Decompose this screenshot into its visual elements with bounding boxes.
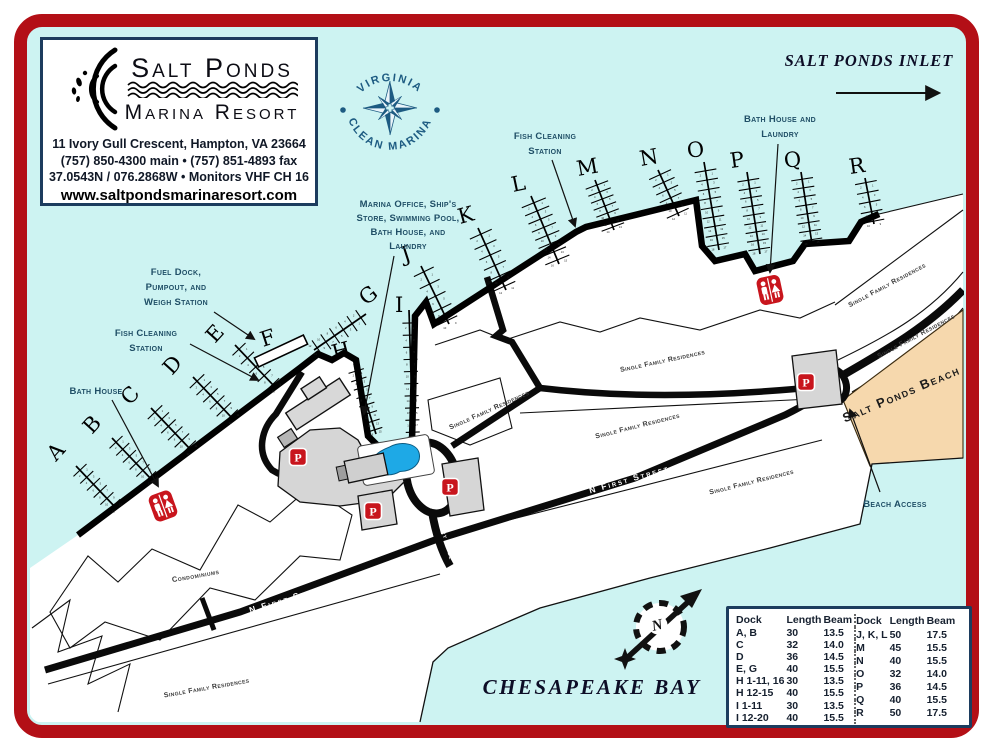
svg-text:14: 14: [708, 229, 711, 233]
svg-text:2: 2: [405, 326, 407, 330]
svg-text:3: 3: [713, 181, 715, 185]
svg-text:7: 7: [612, 204, 614, 208]
svg-text:12: 12: [406, 387, 409, 391]
table-cell: 45: [890, 641, 927, 654]
svg-text:6: 6: [662, 194, 664, 198]
fuel-dock-label: Fuel Dock,: [151, 267, 202, 278]
svg-text:12: 12: [228, 421, 231, 425]
svg-text:2: 2: [421, 278, 423, 282]
svg-text:4: 4: [160, 424, 162, 428]
svg-text:12: 12: [604, 223, 607, 227]
clean-marina-logo: VIRGINIA CLEAN MARINA: [340, 72, 440, 153]
table-row: C3214.0: [736, 639, 855, 651]
table-row: A, B3013.5: [736, 627, 855, 639]
svg-text:1: 1: [162, 409, 164, 413]
dock-letter-B: B: [78, 411, 106, 439]
svg-text:10: 10: [317, 338, 320, 342]
svg-text:10: 10: [747, 217, 750, 221]
svg-text:18: 18: [752, 251, 755, 255]
svg-text:3: 3: [874, 193, 876, 197]
svg-text:11: 11: [511, 286, 514, 290]
svg-text:11: 11: [374, 413, 377, 417]
svg-text:16: 16: [370, 432, 373, 436]
svg-text:4: 4: [744, 191, 746, 195]
svg-text:Bath House, and: Bath House, and: [370, 227, 445, 238]
svg-text:8: 8: [99, 495, 101, 499]
svg-text:12: 12: [186, 452, 189, 456]
svg-text:3: 3: [437, 284, 439, 288]
column-header: Dock: [856, 614, 890, 628]
table-row: O3214.0: [856, 667, 957, 680]
dock-letter-I: I: [395, 293, 403, 317]
svg-text:3: 3: [493, 244, 495, 248]
svg-text:13: 13: [561, 250, 564, 254]
svg-text:3: 3: [129, 446, 131, 450]
svg-text:17: 17: [764, 249, 767, 253]
svg-text:Laundry: Laundry: [389, 241, 427, 252]
svg-text:3: 3: [168, 416, 170, 420]
parking-icon: P: [446, 480, 453, 494]
table-cell: 32: [890, 667, 927, 680]
dock-letter-Q: Q: [782, 147, 802, 173]
restroom-icon: [754, 273, 786, 308]
table-cell: 14.0: [823, 639, 855, 651]
svg-text:11: 11: [616, 218, 619, 222]
table-cell: 30: [786, 627, 823, 639]
svg-text:7: 7: [758, 206, 760, 210]
svg-text:4: 4: [247, 363, 249, 367]
svg-text:6: 6: [486, 260, 488, 264]
svg-text:14: 14: [406, 399, 409, 403]
bath-house-label: Bath House: [69, 386, 122, 397]
fish-cleaning-left-label: Fish Cleaning: [115, 328, 178, 339]
parking-icon: P: [369, 504, 376, 518]
svg-text:3: 3: [210, 385, 212, 389]
svg-text:6: 6: [167, 431, 169, 435]
table-cell: P: [856, 681, 890, 694]
svg-text:9: 9: [760, 215, 762, 219]
table-cell: I 12-20: [736, 712, 786, 724]
svg-text:6: 6: [703, 192, 705, 196]
table-row: D3614.5: [736, 651, 855, 663]
svg-text:4: 4: [481, 250, 483, 254]
svg-text:9: 9: [718, 208, 720, 212]
table-row: H 12-154015.5: [736, 687, 855, 699]
table-cell: 30: [786, 700, 823, 712]
svg-text:5: 5: [136, 453, 138, 457]
table-cell: R: [856, 707, 890, 720]
svg-text:8: 8: [599, 209, 601, 213]
svg-text:10: 10: [867, 224, 870, 228]
svg-text:Station: Station: [129, 343, 162, 354]
slip-table-right: DockLengthBeamJ, K, L5017.5M4515.5N4015.…: [856, 614, 957, 720]
marina-website: www.saltpondsmarinaresort.com: [43, 187, 315, 204]
marina-logo-box: Salt Ponds Marina Resort 11 Ivory Gull C…: [40, 37, 318, 206]
svg-text:6: 6: [432, 302, 434, 306]
table-cell: 14.0: [927, 667, 958, 680]
table-cell: 14.5: [927, 681, 958, 694]
svg-text:6: 6: [799, 199, 801, 203]
svg-text:9: 9: [614, 211, 616, 215]
svg-text:14: 14: [548, 256, 551, 260]
svg-text:10: 10: [668, 209, 671, 213]
table-cell: 13.5: [823, 700, 855, 712]
marina-coordinates: 37.0543N / 076.2868W • Monitors VHF CH 1…: [43, 169, 315, 186]
svg-text:13: 13: [619, 225, 622, 229]
svg-text:16: 16: [805, 242, 808, 246]
svg-text:8: 8: [216, 407, 218, 411]
svg-text:6: 6: [597, 202, 599, 206]
svg-text:5: 5: [876, 203, 878, 207]
svg-text:6: 6: [92, 488, 94, 492]
svg-text:1: 1: [86, 467, 88, 471]
svg-text:12: 12: [365, 416, 368, 420]
svg-text:13: 13: [815, 231, 818, 235]
table-cell: O: [856, 667, 890, 680]
dock-letter-N: N: [638, 144, 660, 171]
svg-text:10: 10: [601, 216, 604, 220]
svg-text:5: 5: [175, 423, 177, 427]
svg-text:16: 16: [551, 264, 554, 268]
svg-text:4: 4: [202, 393, 204, 397]
svg-text:5: 5: [609, 197, 611, 201]
table-cell: 36: [786, 651, 823, 663]
svg-text:10: 10: [801, 216, 804, 220]
fish-cleaning-top-label: Fish Cleaning: [514, 131, 577, 142]
svg-text:9: 9: [230, 406, 232, 410]
svg-text:1: 1: [204, 378, 206, 382]
svg-text:2: 2: [115, 446, 117, 450]
table-cell: 14.5: [823, 651, 855, 663]
svg-text:3: 3: [545, 209, 547, 213]
svg-text:2: 2: [860, 186, 862, 190]
table-cell: I 1-11: [736, 700, 786, 712]
svg-text:7: 7: [812, 206, 814, 210]
bay-label: CHESAPEAKE BAY: [483, 675, 702, 699]
svg-text:13: 13: [720, 227, 723, 231]
table-row: M4515.5: [856, 641, 957, 654]
svg-text:4: 4: [86, 481, 88, 485]
svg-text:14: 14: [803, 233, 806, 237]
dock-letter-E: E: [201, 320, 229, 347]
svg-text:4: 4: [531, 215, 533, 219]
table-row: J, K, L5017.5: [856, 628, 957, 641]
table-row: E, G4015.5: [736, 663, 855, 675]
parking-icon: P: [802, 375, 809, 389]
dock-letter-A: A: [41, 437, 70, 466]
svg-text:9: 9: [113, 496, 115, 500]
svg-text:16: 16: [710, 238, 713, 242]
svg-text:11: 11: [155, 475, 158, 479]
svg-text:2: 2: [239, 354, 241, 358]
svg-text:3: 3: [671, 180, 673, 184]
table-cell: 40: [786, 663, 823, 675]
svg-text:4: 4: [426, 290, 428, 294]
column-header: Beam: [927, 614, 958, 628]
svg-text:1: 1: [488, 234, 490, 238]
svg-text:4: 4: [659, 186, 661, 190]
slip-dimensions-table: DockLengthBeamA, B3013.5C3214.0D3614.5E,…: [726, 606, 972, 728]
table-cell: H 1-11, 16: [736, 675, 786, 687]
beach-access-label: Beach Access: [863, 499, 927, 510]
svg-text:10: 10: [494, 281, 497, 285]
table-cell: 36: [890, 681, 927, 694]
table-row: N4015.5: [856, 654, 957, 667]
svg-text:2: 2: [700, 173, 702, 177]
svg-text:4: 4: [594, 195, 596, 199]
svg-text:6: 6: [256, 372, 258, 376]
table-cell: J, K, L: [856, 628, 890, 641]
table-cell: C: [736, 639, 786, 651]
dock-letter-R: R: [847, 153, 867, 179]
slip-table-left: DockLengthBeamA, B3013.5C3214.0D3614.5E,…: [736, 614, 856, 724]
svg-text:15: 15: [763, 241, 766, 245]
column-header: Length: [786, 614, 823, 627]
svg-text:1: 1: [808, 180, 810, 184]
dock-letter-O: O: [685, 137, 705, 163]
svg-text:16: 16: [751, 243, 754, 247]
svg-text:10: 10: [443, 326, 446, 330]
svg-text:Store, Swimming Pool,: Store, Swimming Pool,: [356, 213, 459, 224]
svg-text:18: 18: [711, 247, 714, 251]
svg-text:1: 1: [667, 173, 669, 177]
table-row: R5017.5: [856, 707, 957, 720]
table-cell: D: [736, 651, 786, 663]
svg-text:2: 2: [655, 178, 657, 182]
table-cell: 15.5: [927, 654, 958, 667]
dock-letter-F: F: [257, 324, 278, 351]
svg-text:15: 15: [564, 258, 567, 262]
table-cell: 40: [890, 654, 927, 667]
svg-text:3: 3: [93, 474, 95, 478]
marina-map-page: 123456789101112A123456789101112B12345678…: [0, 0, 993, 752]
table-cell: 40: [786, 712, 823, 724]
dock-A: 123456789101112A: [41, 437, 122, 513]
svg-text:7: 7: [716, 199, 718, 203]
svg-text:4: 4: [405, 338, 407, 342]
svg-text:10: 10: [105, 502, 108, 506]
svg-text:12: 12: [672, 217, 675, 221]
svg-text:1: 1: [754, 181, 756, 185]
svg-text:13: 13: [414, 399, 417, 403]
svg-text:12: 12: [544, 247, 547, 251]
svg-text:9: 9: [372, 404, 374, 408]
table-cell: 15.5: [823, 663, 855, 675]
svg-text:2: 2: [353, 314, 355, 318]
svg-text:5: 5: [715, 190, 717, 194]
svg-text:4: 4: [122, 453, 124, 457]
svg-text:17: 17: [723, 245, 726, 249]
svg-text:16: 16: [407, 411, 410, 415]
svg-text:11: 11: [119, 503, 122, 507]
compass-star-icon: [363, 81, 417, 135]
table-row: I 1-113013.5: [736, 700, 855, 712]
dock-Q: 12345678910111213141516Q: [782, 147, 822, 246]
svg-text:15: 15: [722, 236, 725, 240]
svg-text:8: 8: [406, 363, 408, 367]
column-header: Length: [890, 614, 927, 628]
marina-address: 11 Ivory Gull Crescent, Hampton, VA 2366…: [43, 136, 315, 153]
table-row: I 12-204015.5: [736, 712, 855, 724]
table-header-row: DockLengthBeam: [736, 614, 855, 627]
bath-laundry-label: Bath House and: [744, 114, 816, 125]
svg-text:10: 10: [272, 389, 275, 393]
svg-text:14: 14: [368, 424, 371, 428]
svg-text:2: 2: [591, 188, 593, 192]
table-cell: 17.5: [927, 707, 958, 720]
svg-text:1: 1: [122, 439, 124, 443]
svg-text:11: 11: [684, 211, 687, 215]
table-row: P3614.5: [856, 681, 957, 694]
svg-text:8: 8: [264, 380, 266, 384]
table-cell: 50: [890, 628, 927, 641]
svg-text:1: 1: [712, 171, 714, 175]
svg-text:5: 5: [443, 297, 445, 301]
svg-text:3: 3: [606, 190, 608, 194]
svg-text:14: 14: [607, 230, 610, 234]
svg-text:6: 6: [128, 460, 130, 464]
dock-letter-P: P: [728, 147, 745, 173]
svg-text:Pumpout, and: Pumpout, and: [146, 282, 207, 293]
svg-text:1: 1: [361, 371, 363, 375]
svg-text:12: 12: [499, 291, 502, 295]
svg-text:6: 6: [335, 326, 337, 330]
svg-text:5: 5: [757, 198, 759, 202]
svg-text:11: 11: [760, 224, 763, 228]
dock-letter-G: G: [354, 281, 382, 310]
svg-text:6: 6: [745, 200, 747, 204]
svg-text:1: 1: [431, 272, 433, 276]
svg-text:11: 11: [557, 242, 560, 246]
table-cell: 30: [786, 675, 823, 687]
inlet-label: SALT PONDS INLET: [785, 51, 954, 70]
svg-text:2: 2: [476, 239, 478, 243]
svg-text:12: 12: [308, 344, 311, 348]
svg-text:2: 2: [796, 181, 798, 185]
svg-text:7: 7: [551, 226, 553, 230]
marina-office-label: Marina Office, Ship's: [360, 199, 457, 210]
svg-text:18: 18: [407, 423, 410, 427]
svg-text:7: 7: [503, 265, 505, 269]
table-cell: 15.5: [823, 687, 855, 699]
svg-text:10: 10: [705, 210, 708, 214]
table-cell: 13.5: [823, 627, 855, 639]
table-cell: 15.5: [927, 694, 958, 707]
svg-text:2: 2: [742, 182, 744, 186]
svg-text:5: 5: [498, 255, 500, 259]
column-header: Dock: [736, 614, 786, 627]
table-cell: 15.5: [823, 712, 855, 724]
svg-text:8: 8: [174, 438, 176, 442]
table-cell: Q: [856, 694, 890, 707]
table-cell: A, B: [736, 627, 786, 639]
table-row: H 1-11, 163013.5: [736, 675, 855, 687]
dock-letter-M: M: [575, 154, 600, 181]
svg-text:4: 4: [701, 183, 703, 187]
svg-text:3: 3: [809, 188, 811, 192]
svg-text:7: 7: [369, 396, 371, 400]
svg-text:8: 8: [135, 467, 137, 471]
svg-text:6: 6: [864, 205, 866, 209]
dock-D: 123456789101112D: [158, 351, 240, 425]
table-cell: E, G: [736, 663, 786, 675]
svg-text:8: 8: [490, 270, 492, 274]
svg-text:2: 2: [79, 474, 81, 478]
svg-text:15: 15: [379, 430, 382, 434]
table-cell: 50: [890, 707, 927, 720]
svg-text:10: 10: [222, 414, 225, 418]
svg-text:7: 7: [106, 488, 108, 492]
svg-text:5: 5: [217, 392, 219, 396]
svg-text:Weigh Station: Weigh Station: [144, 297, 208, 308]
svg-text:2: 2: [154, 417, 156, 421]
table-cell: H 12-15: [736, 687, 786, 699]
marina-phone: (757) 850-4300 main • (757) 851-4893 fax: [43, 153, 315, 170]
svg-text:6: 6: [209, 400, 211, 404]
svg-text:7: 7: [224, 399, 226, 403]
svg-text:8: 8: [704, 201, 706, 205]
svg-text:1: 1: [246, 347, 248, 351]
svg-text:9: 9: [555, 234, 557, 238]
svg-text:11: 11: [814, 223, 817, 227]
table-cell: 13.5: [823, 675, 855, 687]
svg-text:5: 5: [548, 217, 550, 221]
table-header-row: DockLengthBeam: [856, 614, 957, 628]
svg-text:11: 11: [719, 218, 722, 222]
svg-text:Laundry: Laundry: [761, 129, 799, 140]
svg-text:12: 12: [148, 481, 151, 485]
svg-text:1: 1: [358, 322, 360, 326]
svg-text:5: 5: [811, 197, 813, 201]
dock-P: 123456789101112131415161718P: [728, 147, 770, 255]
svg-text:10: 10: [541, 239, 544, 243]
svg-text:12: 12: [112, 509, 115, 513]
table-cell: 17.5: [927, 628, 958, 641]
fish-logo-icon: [59, 46, 121, 132]
column-header: Beam: [823, 614, 855, 627]
svg-text:3: 3: [350, 328, 352, 332]
svg-text:2: 2: [196, 386, 198, 390]
table-cell: 40: [786, 687, 823, 699]
svg-text:4: 4: [797, 190, 799, 194]
svg-text:8: 8: [800, 207, 802, 211]
table-cell: 32: [786, 639, 823, 651]
svg-text:3: 3: [364, 379, 366, 383]
svg-text:1: 1: [604, 183, 606, 187]
dock-letter-D: D: [158, 351, 187, 380]
parking-icon: P: [294, 450, 301, 464]
table-row: Q4015.5: [856, 694, 957, 707]
table-cell: 15.5: [927, 641, 958, 654]
svg-text:8: 8: [327, 332, 329, 336]
svg-text:7: 7: [678, 196, 680, 200]
svg-text:6: 6: [406, 350, 408, 354]
marina-name-line2: Marina Resort: [125, 103, 300, 123]
svg-text:9: 9: [813, 214, 815, 218]
svg-text:6: 6: [535, 223, 537, 227]
svg-text:7: 7: [182, 430, 184, 434]
table-cell: 40: [890, 694, 927, 707]
dock-letter-L: L: [509, 171, 528, 197]
svg-text:1: 1: [872, 183, 874, 187]
svg-text:8: 8: [746, 208, 748, 212]
svg-text:15: 15: [415, 411, 418, 415]
svg-text:12: 12: [707, 220, 710, 224]
svg-text:14: 14: [750, 234, 753, 238]
svg-text:4: 4: [862, 195, 864, 199]
svg-text:17: 17: [415, 423, 418, 427]
svg-text:5: 5: [674, 188, 676, 192]
